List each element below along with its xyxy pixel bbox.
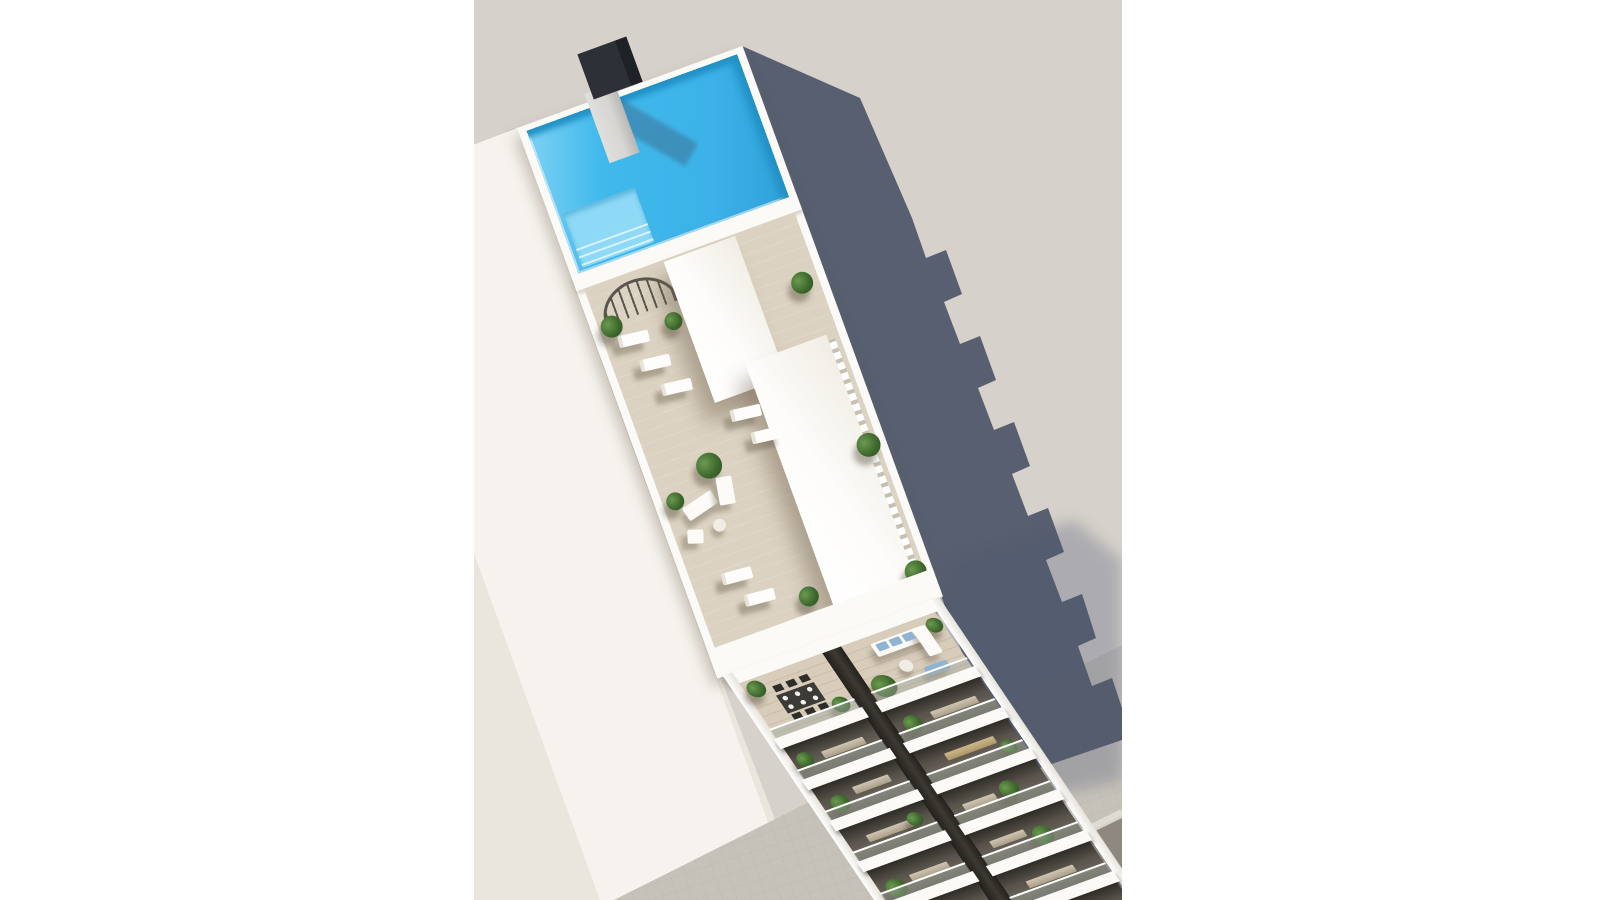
dining-chair bbox=[785, 679, 797, 688]
sun-lounger bbox=[660, 378, 693, 397]
render-canvas bbox=[0, 0, 1600, 900]
street-scene bbox=[474, 0, 1122, 900]
deck-plant bbox=[796, 584, 822, 610]
lounge-sofa bbox=[715, 475, 736, 505]
coffee-table bbox=[896, 658, 916, 674]
right-margin bbox=[1122, 0, 1600, 900]
sun-lounger bbox=[729, 404, 762, 423]
sun-lounger bbox=[743, 588, 776, 608]
lounge-sofa bbox=[682, 490, 719, 521]
dining-chair bbox=[798, 674, 810, 683]
deck-plant bbox=[788, 269, 816, 297]
lounge-armchair bbox=[687, 529, 703, 544]
sun-lounger bbox=[720, 566, 753, 586]
sun-lounger bbox=[639, 354, 672, 373]
left-margin bbox=[0, 0, 474, 900]
sun-lounger bbox=[617, 329, 650, 348]
dining-chair bbox=[772, 683, 784, 692]
coffee-table bbox=[711, 517, 728, 534]
